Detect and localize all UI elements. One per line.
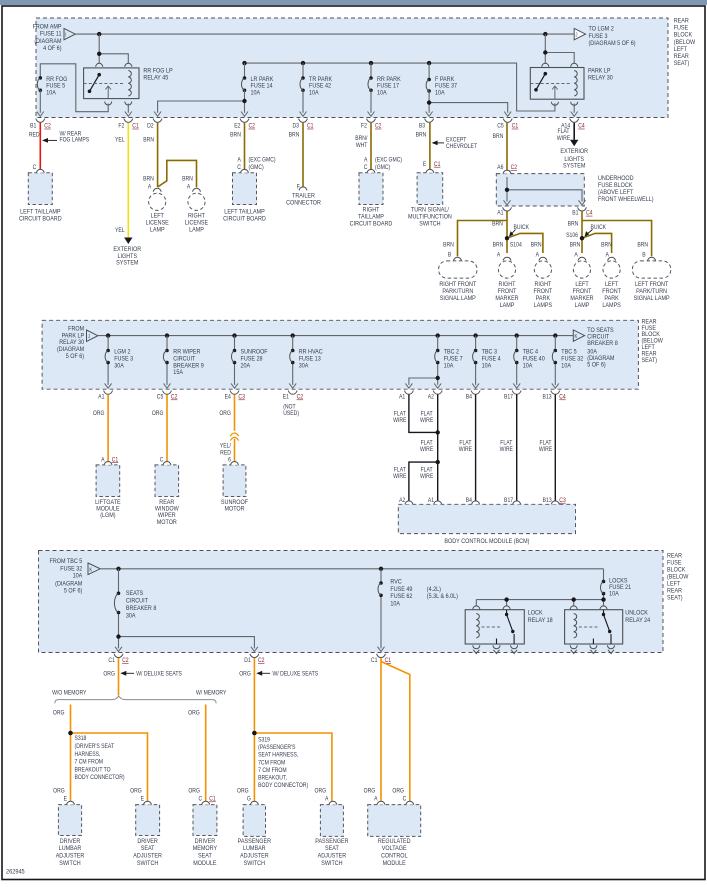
svg-text:RR FOG: RR FOG — [46, 77, 67, 83]
svg-text:C3: C3 — [238, 394, 244, 400]
svg-text:BRN: BRN — [601, 242, 612, 248]
svg-text:7 CM FROM: 7 CM FROM — [75, 759, 104, 765]
svg-text:LEFT: LEFT — [151, 213, 165, 219]
svg-text:BRN: BRN — [443, 242, 454, 248]
svg-text:15A: 15A — [173, 370, 183, 376]
svg-text:BLOCK: BLOCK — [667, 567, 685, 573]
svg-text:E: E — [64, 796, 68, 802]
svg-text:BRN: BRN — [637, 242, 648, 248]
svg-text:FLAT: FLAT — [539, 440, 552, 446]
svg-text:YEL: YEL — [115, 227, 125, 233]
svg-text:A2: A2 — [428, 394, 434, 400]
svg-text:FLAT: FLAT — [394, 467, 407, 473]
svg-text:(DIAGRAM: (DIAGRAM — [57, 347, 84, 353]
svg-text:MOTOR: MOTOR — [224, 506, 244, 512]
svg-text:FOG LAMPS: FOG LAMPS — [60, 137, 90, 143]
svg-text:E: E — [423, 161, 427, 167]
svg-text:VOLTAGE: VOLTAGE — [382, 846, 407, 852]
svg-text:EXCEPT: EXCEPT — [446, 137, 467, 143]
svg-text:FRONT: FRONT — [534, 289, 553, 295]
svg-text:A: A — [374, 796, 378, 802]
svg-text:(DIAGRAM: (DIAGRAM — [34, 39, 61, 45]
svg-text:LEFT TAILLAMP: LEFT TAILLAMP — [20, 209, 60, 215]
svg-text:7CM FROM: 7CM FROM — [258, 760, 285, 766]
svg-text:HARNESS,: HARNESS, — [75, 751, 101, 757]
svg-text:FUSE BLOCK: FUSE BLOCK — [598, 182, 632, 188]
svg-text:E4: E4 — [225, 394, 231, 400]
svg-text:C3: C3 — [559, 497, 565, 503]
svg-text:FUSE 14: FUSE 14 — [251, 83, 274, 89]
svg-text:LEFT FRONT: LEFT FRONT — [635, 282, 669, 288]
svg-text:W/O MEMORY: W/O MEMORY — [52, 690, 87, 696]
svg-text:FLAT: FLAT — [394, 411, 407, 417]
svg-text:ORG: ORG — [152, 411, 164, 417]
svg-text:PARK: PARK — [604, 296, 618, 302]
svg-text:SEAT: SEAT — [141, 846, 155, 852]
svg-text:S104: S104 — [510, 242, 522, 248]
svg-text:WHT: WHT — [356, 143, 368, 149]
svg-text:ORG: ORG — [364, 788, 376, 794]
svg-text:PARK LP: PARK LP — [62, 333, 85, 339]
svg-text:BREAKOUT,: BREAKOUT, — [258, 775, 287, 781]
svg-text:ORG: ORG — [219, 411, 231, 417]
svg-text:WIRE: WIRE — [539, 447, 553, 453]
svg-text:TBC 2: TBC 2 — [444, 349, 459, 355]
svg-text:SUNROOF: SUNROOF — [221, 499, 248, 505]
svg-text:LUMBAR: LUMBAR — [243, 846, 266, 852]
svg-text:E1: E1 — [283, 394, 289, 400]
svg-text:REAR: REAR — [667, 553, 682, 559]
svg-text:FROM: FROM — [68, 326, 84, 332]
svg-text:C2: C2 — [297, 394, 303, 400]
svg-text:BRN: BRN — [570, 242, 581, 248]
svg-text:7 CM FROM: 7 CM FROM — [258, 768, 287, 774]
svg-text:BRN: BRN — [492, 221, 503, 227]
svg-text:FUSE 11: FUSE 11 — [40, 31, 62, 37]
svg-text:FUSE 3: FUSE 3 — [114, 356, 134, 362]
svg-text:A: A — [187, 184, 191, 190]
svg-text:C2: C2 — [375, 123, 381, 129]
svg-text:B13: B13 — [543, 497, 552, 503]
svg-text:(EXC GMC): (EXC GMC) — [249, 157, 276, 163]
svg-text:30A: 30A — [114, 363, 124, 369]
svg-text:BLOCK: BLOCK — [674, 32, 692, 38]
svg-text:(ABOVE LEFT: (ABOVE LEFT — [598, 189, 634, 195]
svg-text:MARKER: MARKER — [495, 296, 518, 302]
svg-text:FLAT: FLAT — [421, 440, 434, 446]
svg-text:(DIAGRAM: (DIAGRAM — [587, 356, 614, 362]
svg-text:WIRE: WIRE — [420, 447, 434, 453]
svg-text:(DIAGRAM: (DIAGRAM — [55, 581, 82, 587]
svg-text:RR FOG LP: RR FOG LP — [143, 68, 172, 74]
svg-text:ORG: ORG — [237, 788, 249, 794]
svg-text:4 OF 6): 4 OF 6) — [43, 46, 61, 52]
svg-text:W/ DELUXE SEATS: W/ DELUXE SEATS — [136, 671, 182, 677]
svg-text:FUSE 5: FUSE 5 — [46, 83, 66, 89]
svg-text:MEMORY: MEMORY — [193, 846, 217, 852]
svg-text:A1: A1 — [399, 394, 405, 400]
svg-text:A: A — [101, 457, 105, 463]
svg-text:FROM TBC 5: FROM TBC 5 — [50, 559, 83, 565]
svg-text:SIGNAL LAMP: SIGNAL LAMP — [634, 296, 670, 302]
svg-text:(BELOW: (BELOW — [667, 574, 689, 580]
svg-text:C1: C1 — [112, 457, 118, 463]
svg-text:LEFT: LEFT — [575, 282, 589, 288]
svg-text:C4: C4 — [586, 210, 592, 216]
svg-text:10A: 10A — [390, 601, 400, 607]
svg-text:RR HVAC: RR HVAC — [299, 349, 324, 355]
svg-text:(GMC): (GMC) — [375, 165, 390, 171]
svg-text:10A: 10A — [309, 90, 319, 96]
svg-text:SYSTEM: SYSTEM — [116, 260, 138, 266]
svg-text:SWITCH: SWITCH — [321, 861, 342, 867]
svg-text:SWITCH: SWITCH — [59, 861, 80, 867]
svg-text:RELAY 18: RELAY 18 — [528, 618, 553, 624]
svg-text:RR WIPER: RR WIPER — [173, 349, 200, 355]
svg-text:CHEVROLET: CHEVROLET — [446, 144, 478, 150]
svg-text:A: A — [238, 157, 242, 163]
svg-text:BRN: BRN — [289, 132, 300, 138]
svg-text:TRAILER: TRAILER — [292, 193, 315, 199]
svg-text:C2: C2 — [122, 658, 128, 664]
svg-text:BODY CONNECTOR): BODY CONNECTOR) — [258, 783, 308, 789]
svg-text:CONNECTOR: CONNECTOR — [286, 200, 321, 206]
svg-text:CIRCUIT: CIRCUIT — [126, 598, 148, 604]
svg-text:LAMPS: LAMPS — [602, 303, 620, 309]
svg-text:F2: F2 — [361, 123, 367, 129]
svg-text:SYSTEM: SYSTEM — [563, 163, 585, 169]
svg-text:RVC: RVC — [390, 579, 402, 585]
svg-text:LIGHTS: LIGHTS — [118, 254, 138, 260]
svg-text:LAMPS: LAMPS — [534, 303, 552, 309]
svg-text:UNDERHOOD: UNDERHOOD — [598, 175, 634, 181]
svg-text:A: A — [606, 252, 610, 258]
svg-text:SIGNAL LAMP: SIGNAL LAMP — [440, 296, 476, 302]
svg-text:MARKER: MARKER — [570, 296, 593, 302]
svg-text:FROM AMP: FROM AMP — [33, 24, 62, 30]
svg-text:MULTIFUNCTION: MULTIFUNCTION — [408, 214, 452, 220]
svg-text:DRIVER: DRIVER — [195, 838, 215, 844]
svg-text:BODY CONTROL MODULE (BCM): BODY CONTROL MODULE (BCM) — [444, 539, 529, 545]
svg-text:BRN: BRN — [182, 176, 193, 182]
svg-text:FUSE 62: FUSE 62 — [390, 593, 412, 599]
svg-text:(PASSENGER'S: (PASSENGER'S — [258, 745, 296, 751]
svg-text:A1: A1 — [497, 210, 503, 216]
svg-text:REAR: REAR — [642, 319, 657, 325]
svg-text:C1: C1 — [307, 123, 313, 129]
svg-text:FLAT: FLAT — [421, 411, 434, 417]
svg-text:BUICK: BUICK — [591, 225, 607, 231]
svg-text:EXTERIOR: EXTERIOR — [113, 247, 141, 253]
svg-text:6: 6 — [228, 457, 231, 463]
svg-text:C1: C1 — [209, 796, 215, 802]
svg-text:BRN: BRN — [493, 242, 504, 248]
svg-text:RED: RED — [220, 450, 231, 456]
svg-text:LEFT: LEFT — [642, 345, 656, 351]
svg-text:LGM 2: LGM 2 — [114, 349, 130, 355]
svg-text:WIRE: WIRE — [393, 474, 407, 480]
svg-text:FUSE 13: FUSE 13 — [299, 356, 322, 362]
svg-text:DRIVER: DRIVER — [137, 838, 157, 844]
svg-text:CIRCUIT: CIRCUIT — [173, 356, 195, 362]
svg-text:(LGM): (LGM) — [100, 513, 115, 519]
svg-text:A: A — [364, 157, 368, 163]
svg-text:S106: S106 — [566, 233, 578, 239]
svg-text:LICENSE: LICENSE — [146, 220, 169, 226]
svg-text:FUSE: FUSE — [667, 560, 682, 566]
svg-text:10A: 10A — [46, 90, 56, 96]
svg-text:LAMP: LAMP — [500, 303, 515, 309]
svg-text:B3: B3 — [419, 123, 425, 129]
svg-text:BRN: BRN — [143, 137, 154, 143]
svg-text:FLAT: FLAT — [459, 440, 472, 446]
svg-text:FUSE 32: FUSE 32 — [561, 356, 583, 362]
svg-text:UNLOCK: UNLOCK — [625, 610, 648, 616]
svg-text:LEFT: LEFT — [674, 47, 688, 53]
svg-text:ADJUSTER: ADJUSTER — [56, 853, 85, 859]
svg-text:262945: 262945 — [6, 868, 25, 876]
svg-text:BLOCK: BLOCK — [642, 332, 660, 338]
svg-text:RELAY 45: RELAY 45 — [143, 75, 168, 81]
svg-text:ORG: ORG — [93, 411, 105, 417]
svg-text:LEFT: LEFT — [667, 581, 681, 587]
svg-text:A1: A1 — [98, 394, 104, 400]
svg-text:RED: RED — [29, 132, 40, 138]
svg-text:C1: C1 — [371, 658, 377, 664]
svg-text:5 OF 6): 5 OF 6) — [587, 362, 605, 368]
svg-text:YEL: YEL — [115, 137, 125, 143]
svg-text:10A: 10A — [482, 363, 492, 369]
svg-text:FRONT WHEELWELL): FRONT WHEELWELL) — [598, 196, 654, 202]
svg-text:WIRE: WIRE — [420, 418, 434, 424]
svg-text:C: C — [364, 165, 368, 171]
svg-text:PARK/TURN: PARK/TURN — [442, 289, 473, 295]
svg-text:BRN: BRN — [416, 132, 427, 138]
svg-text:C1: C1 — [434, 161, 440, 167]
svg-text:ADJUSTER: ADJUSTER — [318, 853, 347, 859]
svg-text:C: C — [160, 457, 164, 463]
svg-text:PASSENGER: PASSENGER — [238, 838, 271, 844]
svg-text:YEL/: YEL/ — [220, 443, 231, 449]
svg-text:10A: 10A — [435, 90, 445, 96]
svg-text:LAMP: LAMP — [150, 227, 165, 233]
svg-text:MODULE: MODULE — [383, 861, 406, 867]
svg-text:RIGHT FRONT: RIGHT FRONT — [439, 282, 476, 288]
svg-text:A6: A6 — [497, 165, 503, 171]
svg-text:SWITCH: SWITCH — [244, 861, 265, 867]
svg-text:WIRE: WIRE — [459, 447, 473, 453]
svg-text:FUSE 28: FUSE 28 — [241, 356, 264, 362]
svg-text:WIPER: WIPER — [158, 513, 176, 519]
svg-text:FUSE 4: FUSE 4 — [482, 356, 502, 362]
svg-text:FLAT: FLAT — [421, 467, 434, 473]
svg-text:10A: 10A — [523, 363, 533, 369]
svg-text:WIRE: WIRE — [557, 136, 571, 142]
svg-text:ORG: ORG — [188, 788, 200, 794]
svg-text:B17: B17 — [504, 497, 513, 503]
svg-text:C2: C2 — [171, 394, 177, 400]
svg-text:LEFT TAILLAMP: LEFT TAILLAMP — [224, 209, 264, 215]
svg-text:LOCK: LOCK — [528, 610, 543, 616]
svg-text:5 OF 6): 5 OF 6) — [64, 588, 82, 594]
svg-text:5 OF 6): 5 OF 6) — [66, 354, 84, 360]
svg-text:C: C — [33, 164, 37, 170]
svg-text:FLAT: FLAT — [500, 440, 513, 446]
svg-text:S318: S318 — [75, 736, 87, 742]
svg-text:BREAKER 8: BREAKER 8 — [126, 605, 157, 611]
svg-text:CIRCUIT BOARD: CIRCUIT BOARD — [350, 221, 393, 227]
svg-text:RR PARK: RR PARK — [377, 77, 401, 83]
svg-text:20A: 20A — [241, 363, 251, 369]
svg-text:10A: 10A — [73, 573, 83, 579]
svg-text:LAMP: LAMP — [575, 303, 590, 309]
svg-text:FUSE 17: FUSE 17 — [377, 83, 399, 89]
svg-text:E2: E2 — [234, 123, 240, 129]
svg-text:EXTERIOR: EXTERIOR — [560, 149, 588, 155]
svg-text:FLAT: FLAT — [557, 129, 570, 135]
svg-text:RELAY 24: RELAY 24 — [625, 618, 650, 624]
svg-text:FUSE 37: FUSE 37 — [435, 83, 457, 89]
svg-text:B4: B4 — [466, 497, 472, 503]
svg-text:C2: C2 — [249, 123, 255, 129]
svg-text:C1: C1 — [512, 123, 518, 129]
svg-text:FUSE: FUSE — [674, 25, 689, 31]
svg-text:SEAT: SEAT — [325, 846, 339, 852]
svg-text:TO LGM 2: TO LGM 2 — [589, 26, 614, 32]
svg-text:RIGHT: RIGHT — [363, 207, 380, 213]
svg-text:SUNROOF: SUNROOF — [241, 349, 268, 355]
svg-text:BRN: BRN — [230, 132, 241, 138]
svg-text:PARK: PARK — [536, 296, 550, 302]
svg-text:LEFT: LEFT — [605, 282, 619, 288]
svg-text:LICENSE: LICENSE — [185, 220, 208, 226]
svg-text:10A: 10A — [377, 90, 387, 96]
svg-text:FUSE 3: FUSE 3 — [589, 33, 609, 39]
svg-text:TAILLAMP: TAILLAMP — [358, 214, 384, 220]
svg-text:ORG: ORG — [130, 788, 142, 794]
svg-text:B13: B13 — [543, 394, 552, 400]
svg-text:S319: S319 — [258, 737, 270, 743]
svg-text:G: G — [247, 796, 251, 802]
svg-text:10A: 10A — [609, 591, 619, 597]
svg-text:ADJUSTER: ADJUSTER — [240, 853, 269, 859]
svg-text:ORG: ORG — [315, 788, 327, 794]
svg-text:WIRE: WIRE — [500, 447, 514, 453]
svg-text:C: C — [199, 796, 203, 802]
svg-text:REAR: REAR — [159, 499, 174, 505]
svg-text:LR PARK: LR PARK — [251, 77, 274, 83]
svg-text:BREAKER 8: BREAKER 8 — [587, 341, 618, 347]
svg-text:I: I — [65, 32, 66, 37]
svg-text:WIRE: WIRE — [420, 474, 434, 480]
svg-text:C5: C5 — [497, 123, 503, 129]
svg-text:LAMP: LAMP — [189, 227, 204, 233]
svg-text:FUSE 42: FUSE 42 — [309, 83, 331, 89]
svg-text:10A: 10A — [444, 363, 454, 369]
svg-text:BRN/: BRN/ — [355, 136, 368, 142]
svg-text:BRN: BRN — [493, 134, 504, 140]
svg-text:REGULATED: REGULATED — [378, 838, 411, 844]
svg-text:A1: A1 — [428, 497, 434, 503]
svg-text:RIGHT: RIGHT — [534, 282, 551, 288]
svg-text:(EXC GMC): (EXC GMC) — [375, 157, 402, 163]
svg-text:(DRIVER'S SEAT: (DRIVER'S SEAT — [75, 744, 115, 750]
svg-text:B4: B4 — [466, 394, 472, 400]
svg-text:(BELOW: (BELOW — [674, 39, 696, 45]
svg-text:B: B — [642, 252, 646, 258]
svg-text:BUICK: BUICK — [514, 225, 530, 231]
svg-text:10A: 10A — [251, 90, 261, 96]
svg-text:BRN: BRN — [143, 176, 154, 182]
svg-text:SWITCH: SWITCH — [137, 861, 158, 867]
svg-text:A: A — [497, 252, 501, 258]
svg-text:CIRCUIT BOARD: CIRCUIT BOARD — [19, 216, 62, 222]
svg-text:PARK LP: PARK LP — [588, 68, 611, 74]
svg-text:LUMBAR: LUMBAR — [59, 846, 82, 852]
svg-text:(GMC): (GMC) — [249, 165, 264, 171]
svg-text:TO SEATS: TO SEATS — [587, 328, 613, 334]
svg-text:CIRCUIT: CIRCUIT — [587, 334, 609, 340]
svg-text:A: A — [536, 252, 540, 258]
svg-text:C: C — [403, 796, 407, 802]
svg-text:C2: C2 — [44, 123, 50, 129]
svg-text:J: J — [88, 334, 90, 339]
svg-text:ORG: ORG — [392, 788, 404, 794]
svg-text:WIRE: WIRE — [393, 418, 407, 424]
svg-text:SEAT: SEAT — [198, 853, 212, 859]
svg-text:MODULE: MODULE — [96, 506, 119, 512]
svg-text:TBC 5: TBC 5 — [561, 349, 577, 355]
svg-text:F PARK: F PARK — [435, 77, 454, 83]
svg-text:SEAT): SEAT) — [667, 595, 683, 601]
svg-text:C2: C2 — [258, 658, 264, 664]
svg-text:(5.3L & 6.0L): (5.3L & 6.0L) — [427, 593, 458, 599]
svg-text:CIRCUIT BOARD: CIRCUIT BOARD — [223, 216, 266, 222]
svg-text:TBC 4: TBC 4 — [523, 349, 539, 355]
svg-text:J: J — [575, 32, 577, 37]
svg-text:FRONT: FRONT — [573, 289, 592, 295]
svg-text:D2: D2 — [147, 123, 153, 129]
svg-text:ORG: ORG — [53, 710, 65, 716]
svg-text:A: A — [148, 184, 152, 190]
svg-text:TURN SIGNAL/: TURN SIGNAL/ — [411, 207, 449, 213]
svg-text:SEAT HARNESS,: SEAT HARNESS, — [258, 752, 299, 758]
svg-text:C1: C1 — [108, 658, 114, 664]
svg-text:B17: B17 — [504, 394, 513, 400]
svg-text:FRONT: FRONT — [498, 289, 517, 295]
svg-text:FUSE 40: FUSE 40 — [523, 356, 546, 362]
svg-text:REAR: REAR — [667, 588, 682, 594]
svg-text:TBC 3: TBC 3 — [482, 349, 498, 355]
svg-text:DRIVER: DRIVER — [60, 838, 80, 844]
svg-text:C2: C2 — [511, 165, 517, 171]
svg-text:B1: B1 — [30, 123, 36, 129]
svg-text:BRN: BRN — [531, 242, 542, 248]
svg-text:TR PARK: TR PARK — [309, 77, 332, 83]
svg-text:LIFTGATE: LIFTGATE — [95, 499, 121, 505]
svg-text:C4: C4 — [578, 123, 584, 129]
svg-text:CONTROL: CONTROL — [381, 853, 408, 859]
svg-text:10A: 10A — [561, 363, 571, 369]
svg-text:ORG: ORG — [239, 671, 251, 677]
svg-text:ORG: ORG — [53, 788, 65, 794]
svg-text:B1: B1 — [572, 210, 578, 216]
svg-text:C: C — [237, 165, 241, 171]
svg-text:W/ DELUXE SEATS: W/ DELUXE SEATS — [273, 671, 319, 677]
svg-text:D3: D3 — [293, 123, 299, 129]
svg-text:PASSENGER: PASSENGER — [315, 838, 348, 844]
svg-text:30A: 30A — [126, 613, 136, 619]
